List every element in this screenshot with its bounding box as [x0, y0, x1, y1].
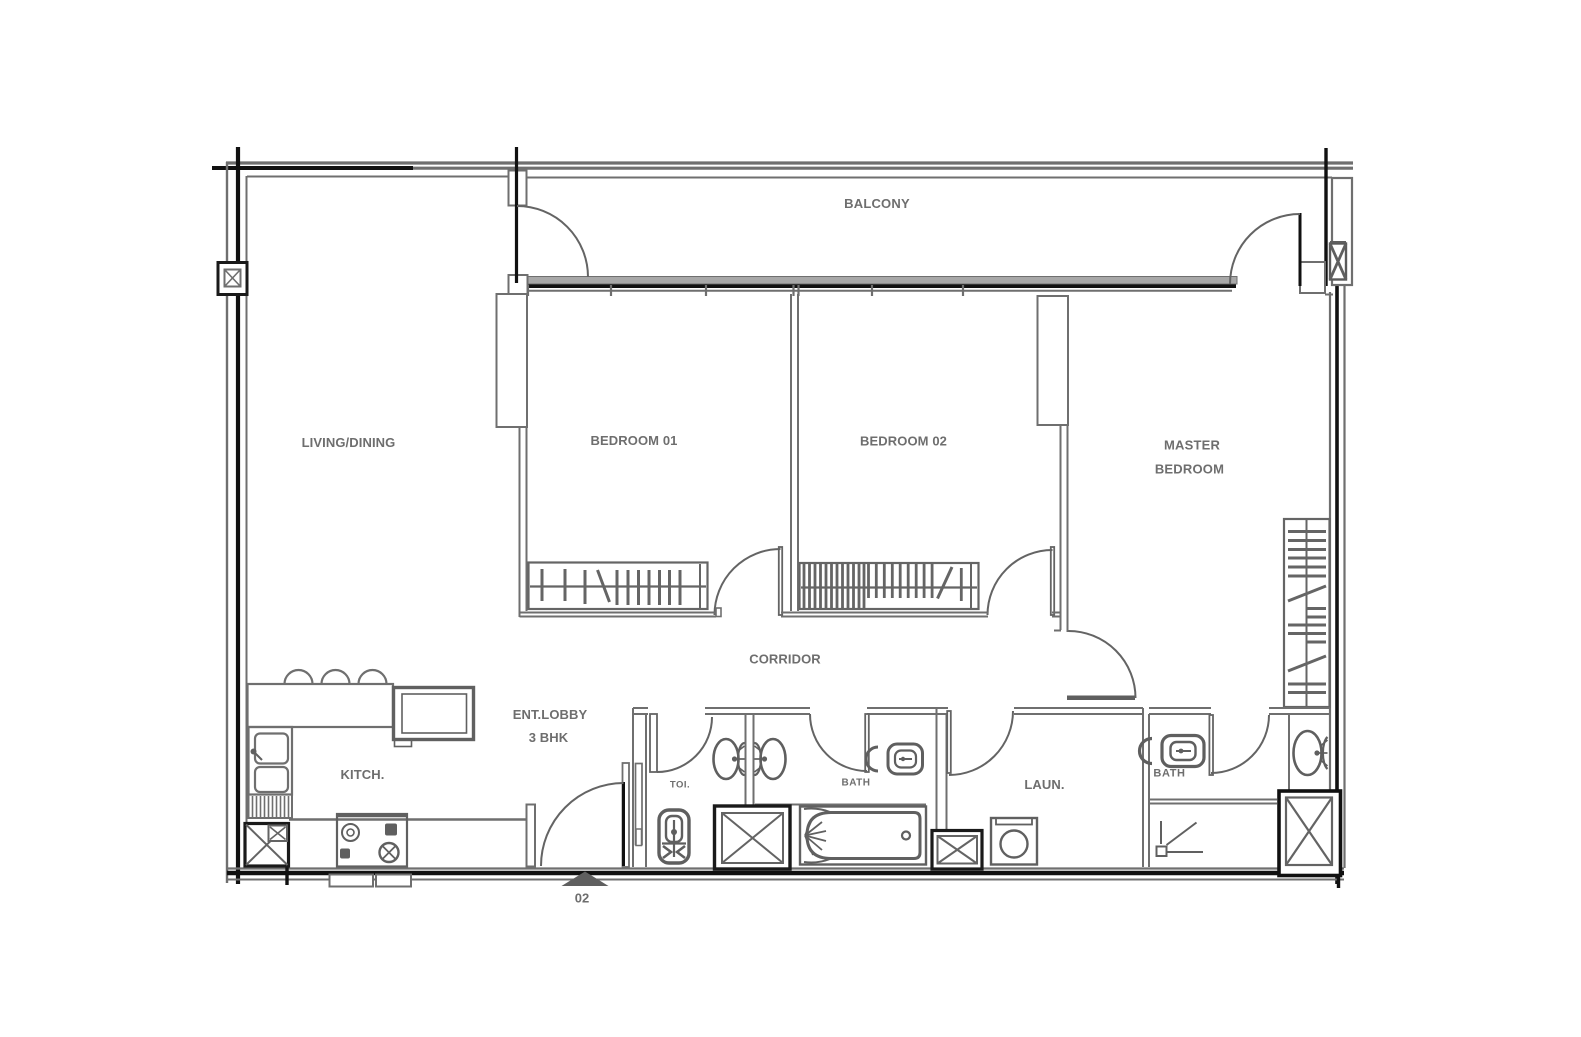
svg-text:BEDROOM: BEDROOM — [1155, 462, 1224, 477]
svg-text:TOI.: TOI. — [670, 780, 690, 791]
svg-text:BEDROOM 01: BEDROOM 01 — [591, 433, 678, 448]
svg-text:3 BHK: 3 BHK — [529, 730, 569, 745]
svg-text:CORRIDOR: CORRIDOR — [749, 652, 821, 667]
svg-text:BEDROOM 02: BEDROOM 02 — [860, 434, 947, 449]
svg-text:BALCONY: BALCONY — [844, 196, 910, 211]
svg-text:BATH: BATH — [1153, 768, 1185, 780]
svg-text:MASTER: MASTER — [1164, 438, 1221, 453]
svg-text:BATH: BATH — [841, 778, 870, 789]
svg-text:ENT.LOBBY: ENT.LOBBY — [513, 707, 588, 722]
svg-text:LIVING/DINING: LIVING/DINING — [302, 435, 396, 450]
svg-text:KITCH.: KITCH. — [341, 767, 385, 782]
svg-text:02: 02 — [575, 891, 589, 906]
svg-text:LAUN.: LAUN. — [1024, 777, 1064, 792]
